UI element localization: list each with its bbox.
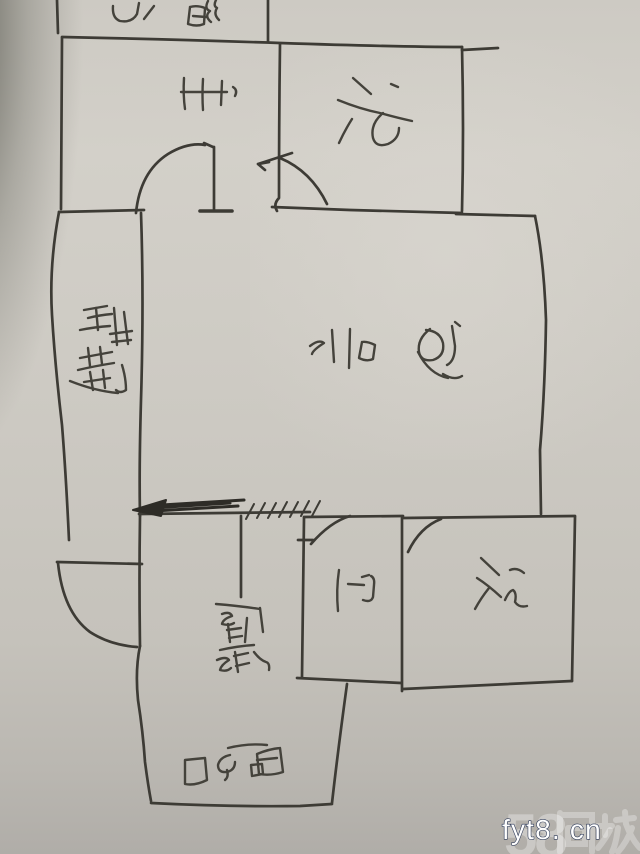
- svg-text:fyt8. cn: fyt8. cn: [502, 814, 602, 845]
